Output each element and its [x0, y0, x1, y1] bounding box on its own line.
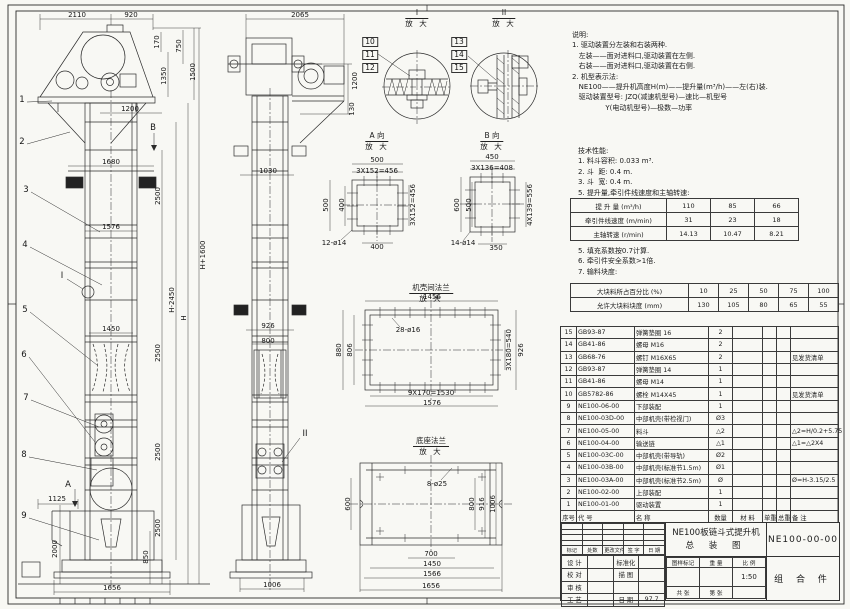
table-cell: 输送链 — [635, 437, 709, 449]
table-cell — [763, 449, 777, 461]
dim-label: 1125 — [48, 495, 66, 503]
table-cell: 日 期 — [644, 546, 665, 555]
dim-label: 926 — [261, 322, 274, 330]
drawing-title-line2: 总 装 图 — [666, 540, 766, 552]
view-title: 底座法兰放 大 — [413, 436, 449, 456]
view-title-name: I — [405, 8, 428, 19]
table-cell — [733, 486, 763, 498]
dim-label: 8-ø25 — [427, 480, 447, 488]
balloon-label: 7 — [23, 394, 28, 402]
table-row: 7NE100-05-00料斗△2△2=H/0.2+5.75 — [561, 425, 839, 437]
table-row: 1NE100-01-00驱动装置1 — [561, 499, 839, 511]
table-row: 2NE100-02-00上部装配1 — [561, 486, 839, 498]
table-row: 12GB93-87弹簧垫圈 141 — [561, 363, 839, 375]
dim-label: 500 — [465, 198, 473, 211]
table-cell: 主轴转速 (r/min) — [571, 227, 667, 241]
view-title-name: A 向 — [365, 131, 388, 142]
view-title: B 向放 大 — [480, 131, 503, 151]
note-line: 左装——面对进料口,驱动装置在左侧. — [572, 51, 768, 61]
dim-label: 1450 — [102, 325, 120, 333]
dim-label: 14-ø14 — [451, 239, 476, 247]
table-row: 10GB5782-86螺栓 M14X451见发货清单 — [561, 388, 839, 400]
balloon-label: I — [61, 272, 64, 280]
table-cell: 1 — [709, 388, 733, 400]
table-cell: 110 — [667, 199, 711, 213]
balloon-label: 3 — [23, 186, 28, 194]
title-block-signatures: 标记处数更改文件号签 字日 期 设 计标准化校 对描 图审 核工 艺日 期97.… — [561, 523, 666, 600]
table-cell: 1 — [709, 376, 733, 388]
dim-label: 400 — [338, 198, 346, 211]
signature-table: 设 计标准化校 对描 图审 核工 艺日 期97.7 — [561, 555, 665, 606]
table-row: 11GB41-86螺母 M141 — [561, 376, 839, 388]
dim-label: H-2450 — [168, 287, 176, 313]
table-row: 8NE100-03D-00中部机壳(带检视门)Ø3 — [561, 413, 839, 425]
part-category: 组 合 件 — [767, 557, 839, 600]
dim-label: 2500 — [154, 344, 162, 362]
table-cell: △1=△2X4 — [791, 437, 839, 449]
table-cell: 比 例 — [733, 558, 766, 568]
front-view-drawing — [18, 14, 210, 595]
note-line: NE100——提升机高度H(m)——提升量(m³/h)——左(右)装. — [572, 82, 768, 92]
table-cell: Ø — [709, 474, 733, 486]
table-cell: 中部机壳(带导轨) — [635, 449, 709, 461]
table-cell: Ø1 — [709, 462, 733, 474]
table-cell: 2 — [561, 486, 577, 498]
table-cell: 14.13 — [667, 227, 711, 241]
dim-label: 1006 — [263, 581, 281, 589]
dim-label: 400 — [370, 243, 383, 251]
table-row: 3NE100-03A-00中部机壳(标准节2.5m)ØØ=H-3.15/2.5 — [561, 474, 839, 486]
dim-label: 700 — [424, 550, 437, 558]
view-title-scale: 放 大 — [492, 19, 515, 29]
table-cell: 见发货清单 — [791, 388, 839, 400]
table-cell — [777, 363, 791, 375]
table-cell — [733, 437, 763, 449]
view-title-name: 机壳间法兰 — [409, 283, 453, 294]
table-cell: 1 — [709, 363, 733, 375]
table-cell — [700, 568, 733, 587]
dim-label: 2500 — [154, 519, 162, 537]
table-cell — [733, 376, 763, 388]
table-cell — [733, 425, 763, 437]
dim-label: 3X152=456 — [409, 184, 417, 226]
capacity-speed-table: 提 升 量 (m³/h)1108566牵引件线速度 (m/min)312318主… — [570, 198, 799, 241]
note-line: 驱动装置型号: JZQ(减速机型号)—速比—机型号 — [572, 92, 768, 102]
table-cell — [791, 462, 839, 474]
dim-label: 3X152=456 — [356, 167, 398, 175]
table-row: 审 核 — [562, 581, 665, 594]
table-cell — [733, 474, 763, 486]
table-cell: 图样标记 — [667, 558, 700, 568]
balloon-label: 9 — [21, 512, 26, 520]
table-cell: 描 图 — [613, 568, 639, 581]
table-cell: △2=H/0.2+5.75 — [791, 425, 839, 437]
table-cell — [777, 462, 791, 474]
table-cell: 11 — [561, 376, 577, 388]
table-cell — [587, 594, 613, 607]
boxed-balloon-label: 12 — [362, 63, 378, 73]
dim-label: 750 — [175, 39, 183, 52]
dim-label: 350 — [489, 244, 502, 252]
bill-of-materials: 15GB93-87弹簧垫圈 16214GB41-86螺母 M16213GB68-… — [560, 326, 839, 524]
table-cell: 螺母 M14 — [635, 376, 709, 388]
table-cell: NE100-04-00 — [577, 437, 635, 449]
scale-weight-table: 图样标记重 量比 例1:50共 张第 张 — [666, 557, 766, 599]
table-cell: 工 艺 — [562, 594, 588, 607]
table-cell: NE100-03D-00 — [577, 413, 635, 425]
table-cell — [777, 327, 791, 339]
balloon-label: A — [65, 481, 71, 489]
table-cell — [733, 339, 763, 351]
table-cell — [587, 581, 613, 594]
table-cell: 驱动装置 — [635, 499, 709, 511]
view-title-scale: 放 大 — [413, 447, 449, 457]
table-cell: 3 — [561, 474, 577, 486]
table-cell — [763, 339, 777, 351]
dim-label: 880 — [335, 343, 343, 356]
table-cell: GB5782-86 — [577, 388, 635, 400]
title-block-right: NE100-00-00 组 合 件 — [767, 523, 839, 600]
table-cell: 螺母 M16 — [635, 339, 709, 351]
table-cell: 10 — [689, 284, 719, 298]
table-cell — [733, 388, 763, 400]
notes-description: 说明:1. 驱动装置分左装和右装两种. 左装——面对进料口,驱动装置在左侧. 右… — [572, 30, 768, 113]
table-cell: NE100-01-00 — [577, 499, 635, 511]
table-cell: 15 — [561, 327, 577, 339]
table-cell: 上部装配 — [635, 486, 709, 498]
balloon-label: 2 — [19, 138, 24, 146]
dim-label: 28-ø16 — [396, 326, 421, 334]
dim-label: 1450 — [423, 560, 441, 568]
dim-label: 12-ø14 — [322, 239, 347, 247]
view-title: A 向放 大 — [365, 131, 388, 151]
table-cell: 中部机壳(带检视门) — [635, 413, 709, 425]
table-cell: 2 — [709, 339, 733, 351]
table-cell: 66 — [755, 199, 799, 213]
view-title-scale: 放 大 — [405, 19, 428, 29]
table-row: 牵引件线速度 (m/min)312318 — [571, 213, 799, 227]
view-title: II放 大 — [492, 8, 515, 28]
table-cell: 1 — [709, 499, 733, 511]
dim-label: 806 — [346, 343, 354, 356]
balloon-label: 5 — [22, 306, 27, 314]
table-cell: 标准化 — [613, 556, 639, 569]
dim-label: 4X139=556 — [526, 184, 534, 226]
table-cell — [791, 499, 839, 511]
table-cell: 13 — [561, 351, 577, 363]
table-cell: 校 对 — [562, 568, 588, 581]
dim-label: 130 — [348, 102, 356, 115]
dim-label: 1030 — [259, 167, 277, 175]
table-cell: 料斗 — [635, 425, 709, 437]
note-line: 右装——面对进料口,驱动装置在右侧. — [572, 61, 768, 71]
view-title: I放 大 — [405, 8, 428, 28]
balloon-label: B — [150, 124, 156, 132]
table-cell — [791, 376, 839, 388]
table-row: 共 张第 张 — [667, 587, 766, 599]
boxed-balloon-label: 15 — [451, 63, 467, 73]
table-cell: Ø=H-3.15/2.5 — [791, 474, 839, 486]
table-cell: GB93-87 — [577, 327, 635, 339]
table-cell — [777, 413, 791, 425]
table-cell: △2 — [709, 425, 733, 437]
table-cell — [733, 462, 763, 474]
table-cell: 1 — [709, 400, 733, 412]
drawing-title-line1: NE100板链斗式提升机 — [666, 527, 766, 540]
table-row: 工 艺日 期97.7 — [562, 594, 665, 607]
note-line: 6. 牵引件安全系数>1倍. — [578, 256, 655, 266]
table-row: 校 对描 图 — [562, 568, 665, 581]
table-cell: 23 — [711, 213, 755, 227]
dim-label: 1680 — [102, 158, 120, 166]
table-cell — [763, 462, 777, 474]
table-cell: △1 — [709, 437, 733, 449]
table-cell: 4 — [561, 462, 577, 474]
table-cell: 12 — [561, 363, 577, 375]
table-cell: 1:50 — [733, 568, 766, 587]
dim-label: 1576 — [102, 223, 120, 231]
table-cell: GB41-86 — [577, 339, 635, 351]
table-cell: 牵引件线速度 (m/min) — [571, 213, 667, 227]
dim-label: 2065 — [291, 11, 309, 19]
table-cell: 提 升 量 (m³/h) — [571, 199, 667, 213]
view-title-scale: 放 大 — [409, 294, 453, 304]
table-cell: 85 — [711, 199, 755, 213]
note-line: 说明: — [572, 30, 768, 40]
detail-I-drawing — [378, 50, 452, 124]
dim-label: 3X180=540 — [505, 329, 513, 371]
dim-label: 600 — [344, 497, 352, 510]
table-cell — [639, 556, 665, 569]
table-cell: NE100-03B-00 — [577, 462, 635, 474]
note-line: 1. 驱动装置分左装和右装两种. — [572, 40, 768, 50]
dim-label: 1566 — [423, 570, 441, 578]
table-row: 主轴转速 (r/min)14.1310.478.21 — [571, 227, 799, 241]
table-row: 4NE100-03B-00中部机壳(标准节1.5m)Ø1 — [561, 462, 839, 474]
table-cell: 弹簧垫圈 16 — [635, 327, 709, 339]
table-cell: 2 — [709, 351, 733, 363]
table-cell — [763, 413, 777, 425]
dim-label: 1656 — [422, 582, 440, 590]
dim-label: 600 — [453, 198, 461, 211]
table-cell: 见发货清单 — [791, 351, 839, 363]
dim-label: 920 — [124, 11, 137, 19]
table-row: 大块料所占百分比 (%)10255075100 — [571, 284, 839, 298]
table-cell — [777, 449, 791, 461]
table-cell: 1 — [561, 499, 577, 511]
table-cell: GB93-87 — [577, 363, 635, 375]
table-cell: 8 — [561, 413, 577, 425]
view-title-scale: 放 大 — [480, 142, 503, 152]
dim-label: 500 — [370, 156, 383, 164]
dim-label: 2500 — [154, 443, 162, 461]
table-cell: 31 — [667, 213, 711, 227]
table-cell: Ø2 — [709, 449, 733, 461]
table-cell — [777, 474, 791, 486]
title-block: 标记处数更改文件号签 字日 期 设 计标准化校 对描 图审 核工 艺日 期97.… — [560, 522, 840, 601]
table-cell — [777, 339, 791, 351]
note-line: 2. 机型表示法: — [572, 72, 768, 82]
table-row: 1:50 — [667, 568, 766, 587]
table-cell: 9 — [561, 400, 577, 412]
table-cell: 螺栓 M14X45 — [635, 388, 709, 400]
dim-label: 170 — [153, 35, 161, 48]
table-cell: 5 — [561, 449, 577, 461]
table-cell — [791, 413, 839, 425]
table-cell: 100 — [809, 284, 839, 298]
table-cell — [613, 581, 639, 594]
dim-label: 1576 — [423, 399, 441, 407]
note-line: 7. 输料块度: — [578, 267, 655, 277]
table-cell: 处数 — [582, 546, 603, 555]
dim-label: 2000 — [51, 540, 59, 558]
table-cell — [791, 339, 839, 351]
table-row: 图样标记重 量比 例 — [667, 558, 766, 568]
note-line: 5. 提升量,牵引件线速度和主轴转速: — [578, 188, 690, 198]
boxed-balloon-label: 13 — [451, 37, 467, 47]
table-cell — [791, 363, 839, 375]
table-row: 6NE100-04-00输送链△1△1=△2X4 — [561, 437, 839, 449]
table-cell — [777, 400, 791, 412]
dim-label: 1350 — [160, 67, 168, 85]
dim-label: 1200 — [351, 72, 359, 90]
table-cell — [733, 363, 763, 375]
dim-label: 2500 — [154, 187, 162, 205]
table-cell — [791, 449, 839, 461]
table-cell: 65 — [779, 298, 809, 312]
title-block-center: NE100板链斗式提升机 总 装 图 图样标记重 量比 例1:50共 张第 张 — [666, 523, 767, 600]
table-cell — [763, 499, 777, 511]
boxed-balloon-label: 11 — [362, 50, 378, 60]
dim-label: 926 — [517, 343, 525, 356]
table-row: 提 升 量 (m³/h)1108566 — [571, 199, 799, 213]
table-cell: 允许大块料块度 (mm) — [571, 298, 689, 312]
table-cell: GB41-86 — [577, 376, 635, 388]
table-cell: 大块料所占百分比 (%) — [571, 284, 689, 298]
table-cell: 螺钉 M16X65 — [635, 351, 709, 363]
table-cell: 75 — [779, 284, 809, 298]
table-cell: 14 — [561, 339, 577, 351]
balloon-label: II — [302, 430, 307, 438]
table-cell: Ø3 — [709, 413, 733, 425]
table-cell — [791, 327, 839, 339]
table-cell: 签 字 — [623, 546, 644, 555]
table-cell — [777, 425, 791, 437]
table-cell — [777, 437, 791, 449]
revision-table: 标记处数更改文件号签 字日 期 — [561, 523, 665, 555]
table-row: 标记处数更改文件号签 字日 期 — [562, 546, 665, 555]
dim-label: 800 — [261, 337, 274, 345]
table-cell — [733, 351, 763, 363]
view-title: 机壳间法兰放 大 — [409, 283, 453, 303]
table-cell — [777, 388, 791, 400]
table-cell: 6 — [561, 437, 577, 449]
drawing-title: NE100板链斗式提升机 总 装 图 — [666, 523, 766, 557]
table-cell: 重 量 — [700, 558, 733, 568]
table-cell: 日 期 — [613, 594, 639, 607]
table-cell — [763, 474, 777, 486]
dim-label: H — [180, 315, 188, 320]
table-cell: GB68-76 — [577, 351, 635, 363]
table-cell: NE100-05-00 — [577, 425, 635, 437]
table-cell: 25 — [719, 284, 749, 298]
table-cell — [733, 449, 763, 461]
table-cell — [763, 400, 777, 412]
table-cell: NE100-02-00 — [577, 486, 635, 498]
table-cell: 18 — [755, 213, 799, 227]
drawing-sheet: 2110920170750135015001200B168025001576H-… — [0, 0, 850, 609]
table-row: 13GB68-76螺钉 M16X652见发货清单 — [561, 351, 839, 363]
view-title-scale: 放 大 — [365, 142, 388, 152]
table-cell — [667, 568, 700, 587]
table-cell — [763, 425, 777, 437]
table-cell — [733, 587, 766, 599]
table-cell: 设 计 — [562, 556, 588, 569]
table-cell — [791, 400, 839, 412]
table-cell: 审 核 — [562, 581, 588, 594]
table-cell: NE100-03C-00 — [577, 449, 635, 461]
note-line: 技术性能: — [578, 146, 690, 156]
table-row: 15GB93-87弹簧垫圈 162 — [561, 327, 839, 339]
table-cell — [587, 556, 613, 569]
table-cell — [587, 568, 613, 581]
table-cell — [763, 376, 777, 388]
table-cell: 105 — [719, 298, 749, 312]
table-cell — [763, 486, 777, 498]
dim-label: 2110 — [68, 11, 86, 19]
note-line: 1. 料斗容积: 0.033 m³. — [578, 156, 690, 166]
table-cell: 7 — [561, 425, 577, 437]
balloon-label: 1 — [19, 96, 24, 104]
table-row: 5NE100-03C-00中部机壳(带导轨)Ø2 — [561, 449, 839, 461]
dim-label: 850 — [142, 550, 150, 563]
table-cell: 10 — [561, 388, 577, 400]
table-cell — [733, 413, 763, 425]
table-cell: 中部机壳(标准节2.5m) — [635, 474, 709, 486]
dim-label: 1200 — [121, 105, 139, 113]
table-cell — [763, 363, 777, 375]
table-cell — [777, 486, 791, 498]
view-title-name: B 向 — [480, 131, 503, 142]
boxed-balloon-label: 10 — [362, 37, 378, 47]
table-row: 9NE100-06-00下部装配1 — [561, 400, 839, 412]
note-line: 2. 斗 距: 0.4 m. — [578, 167, 690, 177]
side-view-drawing — [228, 14, 352, 592]
table-cell: 下部装配 — [635, 400, 709, 412]
table-cell: 第 张 — [700, 587, 733, 599]
note-line: 3. 斗 宽: 0.4 m. — [578, 177, 690, 187]
lump-size-table: 大块料所占百分比 (%)10255075100允许大块料块度 (mm)13010… — [570, 283, 839, 312]
note-line: Y(电动机型号)—极数—功率 — [572, 103, 768, 113]
dim-label: 3X136=408 — [471, 164, 513, 172]
table-cell: NE100-03A-00 — [577, 474, 635, 486]
dim-label: 800 — [468, 497, 476, 510]
view-title-name: 底座法兰 — [413, 436, 449, 447]
balloon-label: 6 — [21, 351, 26, 359]
table-row: 14GB41-86螺母 M162 — [561, 339, 839, 351]
note-line: 5. 填充系数按0.7计算. — [578, 246, 655, 256]
balloon-label: 4 — [22, 241, 27, 249]
table-cell: 2 — [709, 327, 733, 339]
table-cell — [763, 437, 777, 449]
table-cell — [733, 400, 763, 412]
table-cell: 中部机壳(标准节1.5m) — [635, 462, 709, 474]
balloon-label: 8 — [21, 451, 26, 459]
table-cell: 80 — [749, 298, 779, 312]
table-row: 允许大块料块度 (mm)130105806555 — [571, 298, 839, 312]
dim-label: 450 — [485, 153, 498, 161]
dim-label: 500 — [322, 198, 330, 211]
